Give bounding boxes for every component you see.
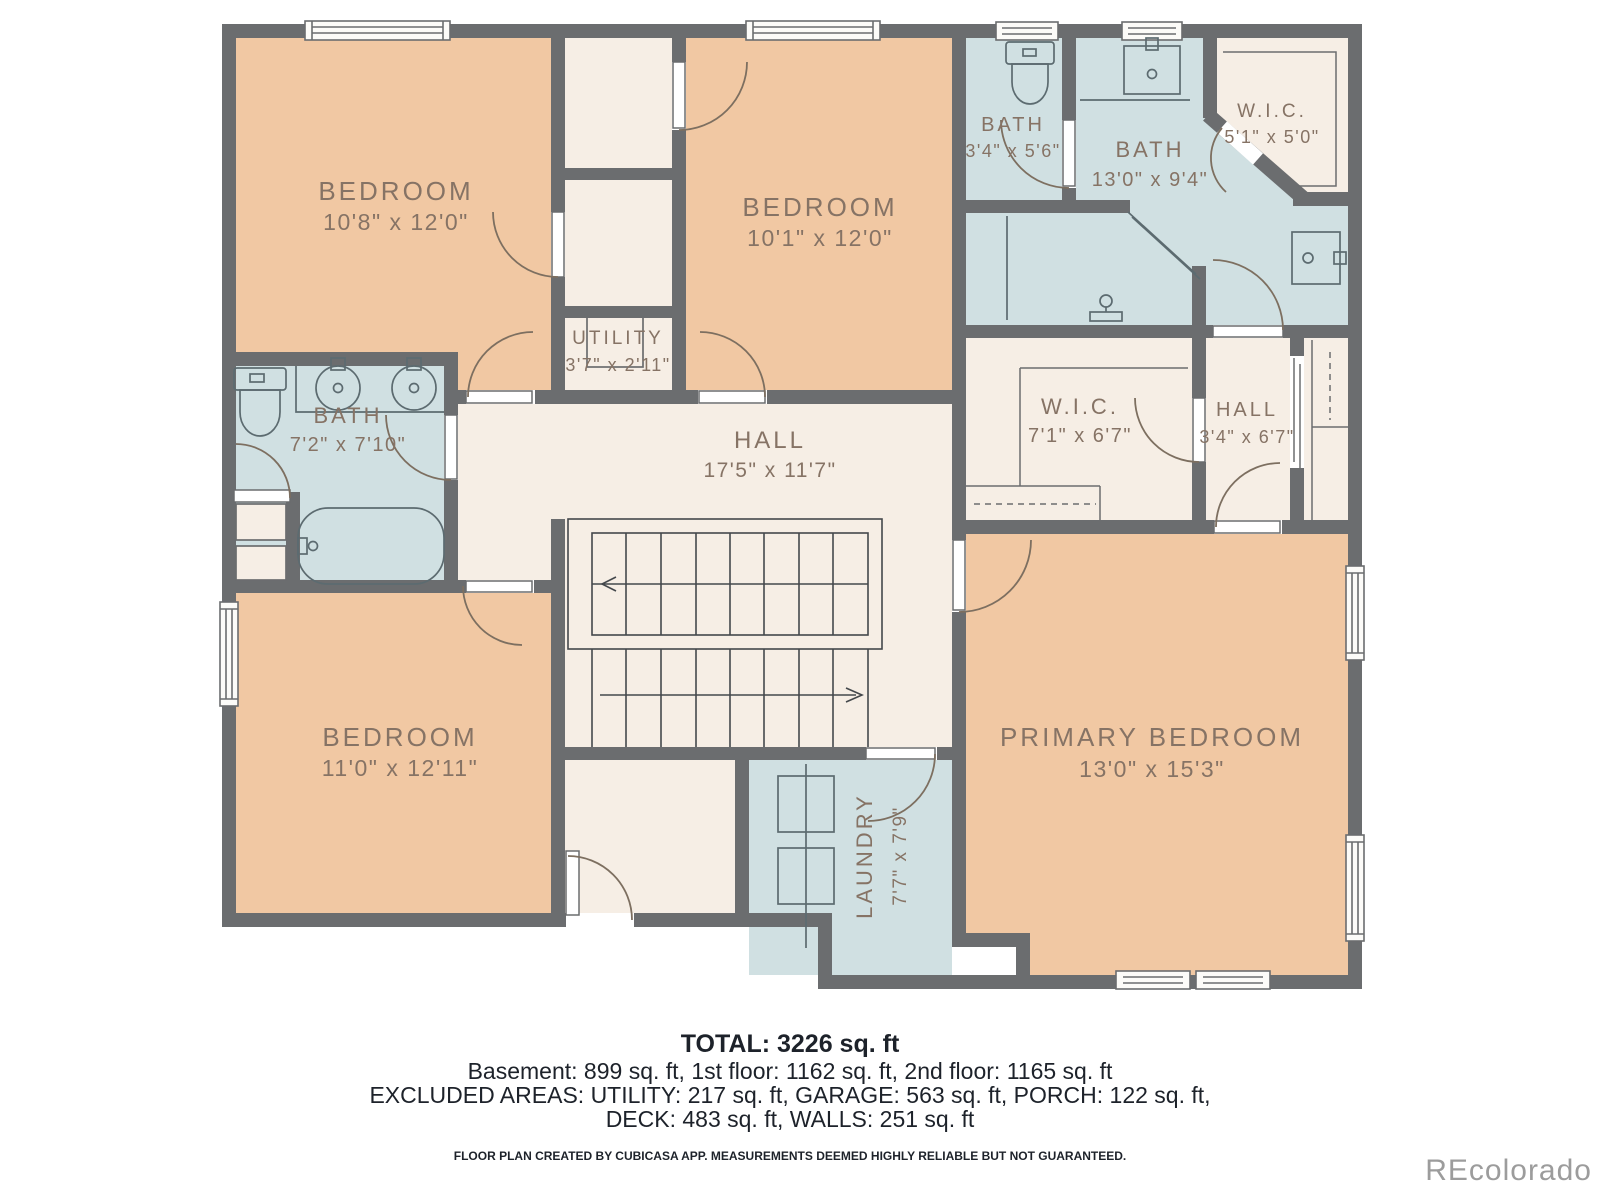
room-dims-bath-top: 3'4" x 5'6" (965, 141, 1060, 161)
window-primary-right-lower (1346, 835, 1364, 941)
door-leaf (234, 490, 290, 502)
room-label-bedroom-top-middle: BEDROOM (742, 192, 897, 222)
door-leaf (1214, 521, 1280, 533)
floor-plan-canvas: BEDROOM 10'8" x 12'0" BEDROOM 10'1" x 12… (0, 0, 1600, 1200)
window-bath-top (996, 22, 1058, 40)
window-bedroom-top-left (305, 21, 450, 40)
room-label-laundry: LAUNDRY (852, 793, 877, 919)
door-leaf (673, 62, 685, 128)
recolorado-watermark: REcolorado (1425, 1154, 1592, 1187)
room-bedroom-bottom-left-floor (236, 593, 551, 913)
room-dims-bedroom-top-middle: 10'1" x 12'0" (747, 225, 893, 251)
door-leaf (866, 748, 935, 759)
room-label-bedroom-bottom-left: BEDROOM (322, 722, 477, 752)
room-label-bath-main: BATH (1115, 137, 1184, 162)
room-label-bath-top: BATH (981, 114, 1045, 136)
small-room-floor (565, 760, 735, 913)
room-label-wic-top: W.I.C. (1237, 101, 1307, 122)
closet-b-floor (565, 180, 672, 318)
room-dims-wic-top: 5'1" x 5'0" (1224, 127, 1319, 147)
summary-total: TOTAL: 3226 sq. ft (681, 1030, 900, 1058)
door-leaf (466, 581, 532, 592)
window-primary-right-upper (1346, 566, 1364, 660)
door-leaf (566, 851, 579, 915)
room-label-hall-main: HALL (734, 427, 806, 454)
window-bedroom-top-middle (746, 21, 880, 40)
door-leaf (953, 540, 965, 610)
room-dims-utility: 3'7" x 2'11" (565, 355, 670, 375)
room-dims-bath-main: 13'0" x 9'4" (1092, 169, 1209, 191)
room-dims-bedroom-bottom-left: 11'0" x 12'11" (322, 755, 479, 781)
summary-deck-walls: DECK: 483 sq. ft, WALLS: 251 sq. ft (606, 1106, 975, 1132)
closet-a-floor (565, 38, 672, 180)
room-dims-hall-small: 3'4" x 6'7" (1199, 427, 1294, 447)
room-label-bath-left: BATH (313, 403, 382, 428)
room-dims-hall-main: 17'5" x 11'7" (703, 459, 836, 482)
summary-floors: Basement: 899 sq. ft, 1st floor: 1162 sq… (468, 1058, 1113, 1084)
door-leaf (552, 212, 564, 277)
room-dims-bath-left: 7'2" x 7'10" (290, 434, 407, 456)
room-label-wic-middle: W.I.C. (1041, 394, 1119, 419)
room-dims-bedroom-top-left: 10'8" x 12'0" (323, 209, 469, 235)
room-label-hall-small: HALL (1216, 399, 1278, 421)
room-dims-wic-middle: 7'1" x 6'7" (1028, 425, 1132, 447)
room-primary-bedroom-floor (966, 534, 1348, 975)
door-leaf (445, 415, 457, 479)
room-label-primary-bedroom: PRIMARY BEDROOM (1000, 722, 1304, 752)
area-summary: TOTAL: 3226 sq. ft Basement: 899 sq. ft,… (369, 1030, 1210, 1163)
door-leaf (1063, 120, 1075, 186)
door-leaf (466, 391, 532, 403)
room-dims-primary-bedroom: 13'0" x 15'3" (1079, 756, 1225, 782)
door-leaf (699, 391, 765, 403)
room-bath-main-shower-floor (966, 213, 1076, 338)
room-laundry-floor (749, 760, 952, 975)
door-leaf (1213, 326, 1283, 337)
summary-disclaimer: FLOOR PLAN CREATED BY CUBICASA APP. MEAS… (454, 1149, 1127, 1163)
room-dims-laundry: 7'7" x 7'9" (890, 806, 911, 906)
floor-plan-page: BEDROOM 10'8" x 12'0" BEDROOM 10'1" x 12… (0, 0, 1600, 1200)
room-label-bedroom-top-left: BEDROOM (318, 176, 473, 206)
closet-right-floor (1304, 338, 1348, 520)
window-bedroom-bottom-left (220, 602, 238, 706)
summary-excluded: EXCLUDED AREAS: UTILITY: 217 sq. ft, GAR… (369, 1082, 1210, 1108)
room-label-utility: UTILITY (572, 328, 664, 349)
